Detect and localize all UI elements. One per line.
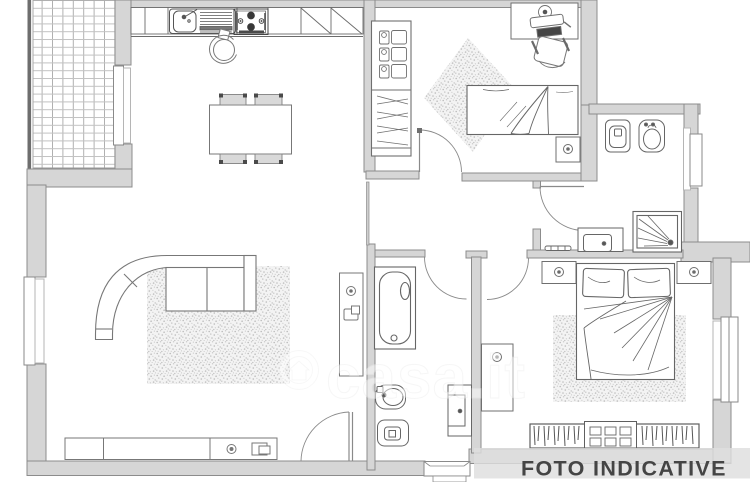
svg-text:casa.it: casa.it	[326, 343, 526, 412]
svg-text:FOTO INDICATIVE: FOTO INDICATIVE	[521, 457, 727, 481]
